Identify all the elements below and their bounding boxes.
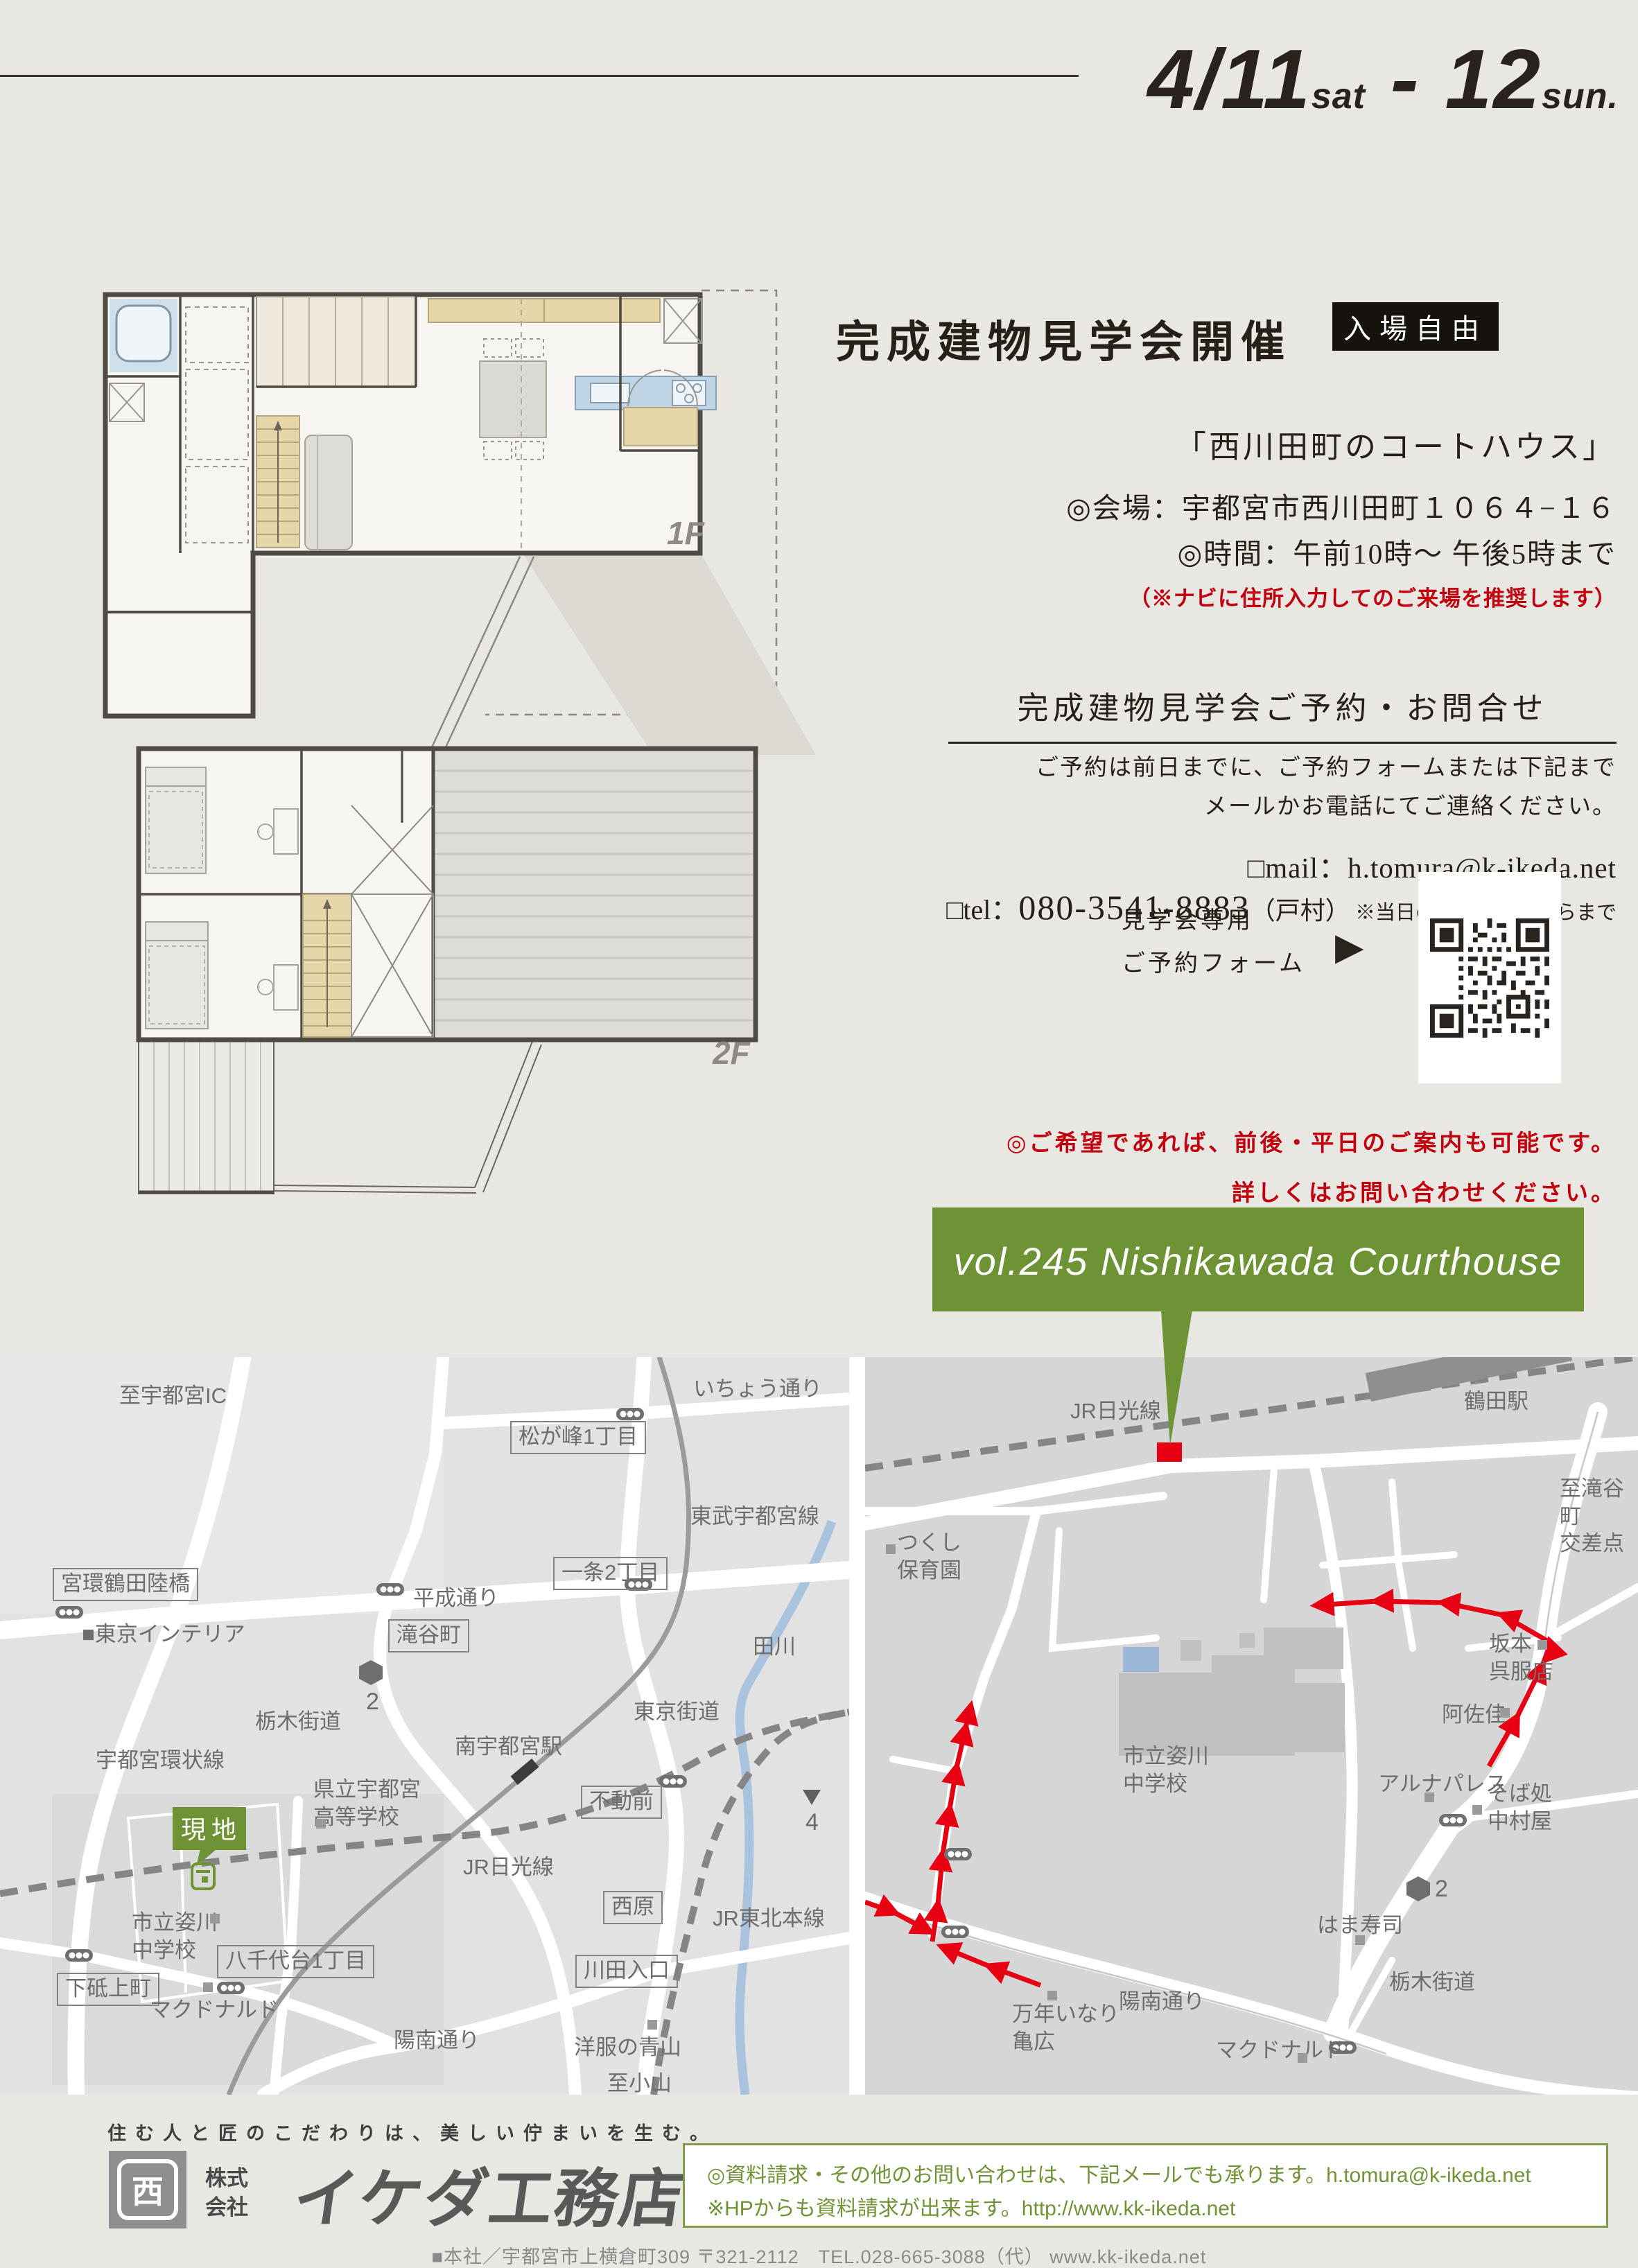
- map-label: マクドナルド: [150, 1996, 279, 2024]
- route-4-number: 4: [805, 1809, 819, 1836]
- building-marker-icon: [1298, 2053, 1307, 2063]
- reserve-line1: ご予約は前日までに、ご予約フォームまたは下記まで: [832, 749, 1617, 782]
- detail-map: JR日光線 鶴田駅 至滝谷町 交差点 つくし 保育園 坂本 呉服店 阿佐佳 アル…: [865, 1357, 1638, 2095]
- map-label: 南宇都宮駅: [455, 1733, 562, 1761]
- date-sat: sat: [1312, 76, 1366, 116]
- map-label: 栃木街道: [1389, 1969, 1475, 1996]
- map-label: いちょう通り: [693, 1375, 822, 1403]
- company-prefix-1: 株式: [205, 2164, 248, 2193]
- map-label: JR日光線: [463, 1853, 554, 1881]
- map-label-boxed: 西原: [603, 1891, 663, 1924]
- map-label: 洋服の青山: [574, 2034, 681, 2061]
- building-marker-icon: [316, 1819, 326, 1829]
- building-marker-icon: [210, 1914, 220, 1924]
- qr-code-icon: [1430, 918, 1549, 1038]
- map-label: 田川: [753, 1633, 796, 1661]
- floor1-label: 1F: [667, 514, 704, 552]
- qr-caption-1: 見学会専用: [1122, 901, 1253, 935]
- map-label: 陽南通り: [1119, 1988, 1205, 2016]
- map-label: 阿佐佳: [1442, 1701, 1506, 1729]
- maps-section: 至宇都宮IC いちょう通り 松が峰1丁目 東武宇都宮線 一条2丁目 平成通り 宮…: [0, 1357, 1638, 2095]
- project-banner: vol.245 Nishikawada Courthouse: [932, 1207, 1584, 1450]
- admission-badge: 入場自由: [1332, 302, 1499, 351]
- map-label-boxed: 松が峰1丁目: [510, 1421, 646, 1454]
- reserve-line2: メールかお電話にてご連絡ください。: [832, 787, 1617, 821]
- company-prefix: 株式 会社: [205, 2164, 248, 2222]
- map-label-boxed: 八千代台1丁目: [217, 1945, 374, 1978]
- event-venue: ◎会場：宇都宮市西川田町１０６４−１６: [832, 485, 1617, 526]
- map-label: そば処 中村屋: [1488, 1780, 1552, 1835]
- map-label: 至滝谷町 交差点: [1560, 1475, 1638, 1558]
- event-subtitle: 「西川田町のコートハウス」: [832, 421, 1617, 466]
- floor2-label: 2F: [713, 1034, 750, 1072]
- floorplan-1f: [97, 279, 818, 758]
- tel-person: （戸村）: [1251, 897, 1350, 925]
- date-sun: sun.: [1542, 76, 1619, 116]
- address-line: ■本社／宇都宮市上横倉町309 〒321-2112 TEL.028-665-30…: [0, 2242, 1638, 2268]
- info-line-1: ◎資料請求・その他のお問い合わせは、下記メールでも承ります。h.tomura@k…: [707, 2158, 1531, 2188]
- building-marker-icon: [1537, 1640, 1547, 1650]
- map-label: 市立姿川 中学校: [132, 1909, 218, 1964]
- logo-mark: 西: [117, 2159, 178, 2220]
- map-label-boxed: 不動前: [581, 1786, 662, 1819]
- building-marker-icon: [886, 1544, 896, 1554]
- map-label: 東武宇都宮線: [690, 1503, 819, 1530]
- building-marker-icon: [1472, 1805, 1482, 1815]
- arrow-right-icon: ▶: [1335, 925, 1364, 968]
- site-label-svg: 現地: [181, 1815, 242, 1844]
- route-2-number: 2: [366, 1689, 379, 1716]
- company-name: イケダ工務店: [288, 2147, 692, 2240]
- date-dash: -: [1366, 32, 1445, 126]
- company-prefix-2: 会社: [205, 2193, 248, 2222]
- building-marker-icon: [1355, 1935, 1365, 1945]
- building-marker-icon: [647, 2020, 657, 2030]
- map-label: 東京街道: [634, 1698, 720, 1726]
- building-marker-icon: [1047, 1991, 1057, 2000]
- map-label: JR東北本線: [713, 1905, 825, 1933]
- contact-info-box: ◎資料請求・その他のお問い合わせは、下記メールでも承ります。h.tomura@k…: [683, 2143, 1608, 2228]
- map-label: 至小山: [607, 2070, 672, 2095]
- company-logo: 西: [109, 2151, 186, 2228]
- building-marker-icon: [203, 1982, 213, 1992]
- map-label: 県立宇都宮 高等学校: [313, 1776, 421, 1831]
- qr-code: [1418, 872, 1561, 1083]
- date-day1: 4/11: [1147, 32, 1311, 126]
- map-label: 陽南通り: [394, 2027, 480, 2055]
- route-4-triangle-icon: [803, 1790, 821, 1805]
- school-buildings: [1119, 1628, 1345, 1756]
- detail-map-drawing: [865, 1357, 1638, 2095]
- map-label: 平成通り: [413, 1585, 499, 1612]
- map-label-boxed: 滝谷町: [388, 1619, 469, 1652]
- map-label-boxed: 川田入口: [575, 1955, 678, 1988]
- qr-caption-2: ご予約フォーム: [1122, 944, 1305, 978]
- map-label: つくし 保育園: [897, 1529, 961, 1584]
- header-rule: [0, 75, 1079, 77]
- event-date: 4/11sat - 12sun.: [1147, 30, 1619, 128]
- event-title: 完成建物見学会開催: [836, 307, 1291, 370]
- map-label: ■東京インテリア: [82, 1621, 245, 1648]
- site-marker: 現地: [173, 1807, 263, 1897]
- company-tagline: 住む人と匠のこだわりは、美しい佇まいを生む。: [107, 2118, 717, 2145]
- nav-note: （※ナビに住所入力してのご来場を推奨します）: [832, 581, 1617, 612]
- map-label: 栃木街道: [255, 1708, 341, 1736]
- building-marker-icon: [1424, 1792, 1434, 1802]
- map-label: 宇都宮環状線: [96, 1747, 225, 1774]
- map-label: 坂本 呉服店: [1489, 1630, 1553, 1685]
- tel-prefix: □tel：: [946, 894, 1018, 925]
- map-label: 市立姿川 中学校: [1123, 1743, 1209, 1797]
- map-label: 至宇都宮IC: [119, 1382, 227, 1410]
- weekday-note-2: 詳しくはお問い合わせください。: [832, 1174, 1617, 1207]
- event-time: ◎時間：午前10時〜 午後5時まで: [832, 530, 1617, 572]
- route-2-number: 2: [1435, 1876, 1448, 1903]
- map-label-boxed: 一条2丁目: [553, 1557, 668, 1590]
- map-label-boxed: 宮環鶴田陸橋: [53, 1568, 198, 1601]
- date-day2: 12: [1445, 32, 1542, 126]
- map-label: マクドナルド: [1216, 2036, 1345, 2064]
- flyer-page: 4/11sat - 12sun.: [0, 0, 1638, 2268]
- building-marker-icon: [1500, 1708, 1510, 1718]
- map-label-boxed: 下砥上町: [57, 1973, 159, 2006]
- floorplan-2f: [128, 743, 763, 1201]
- info-line-2: ※HPからも資料請求が出来ます。http://www.kk-ikeda.net: [707, 2191, 1235, 2222]
- reserve-heading: 完成建物見学会ご予約・お問合せ: [948, 683, 1617, 744]
- map-label: 万年いなり 亀広: [1012, 2000, 1119, 2055]
- school-pool: [1123, 1647, 1159, 1672]
- banner-text-svg: vol.245 Nishikawada Courthouse: [954, 1239, 1563, 1283]
- weekday-note-1: ◎ご希望であれば、前後・平日のご案内も可能です。: [832, 1124, 1617, 1158]
- company-logo-icon: [192, 1864, 214, 1889]
- area-map: 至宇都宮IC いちょう通り 松が峰1丁目 東武宇都宮線 一条2丁目 平成通り 宮…: [0, 1357, 849, 2095]
